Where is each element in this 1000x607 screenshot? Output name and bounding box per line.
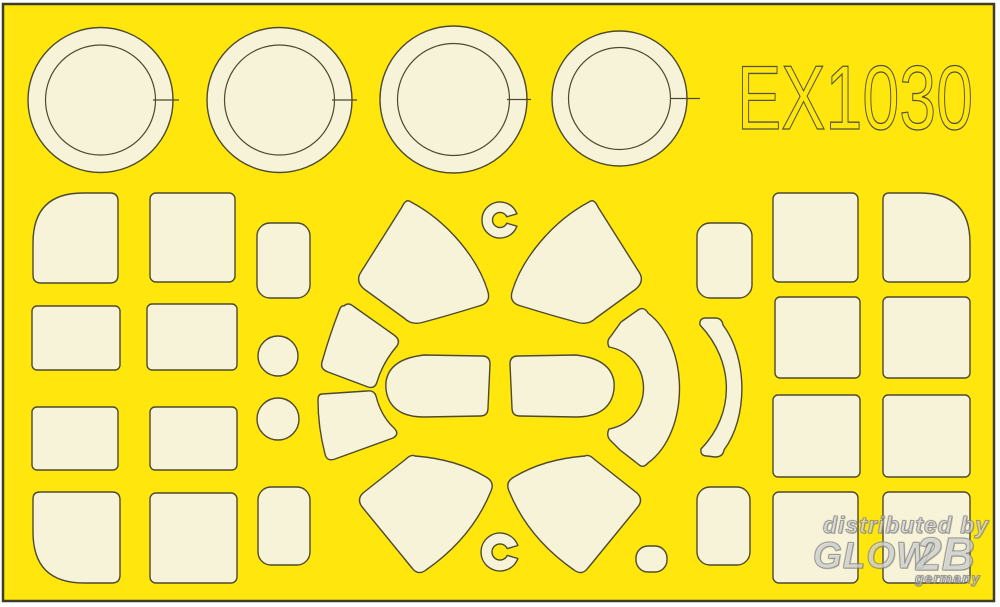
panel-mask-right-r3c1: [773, 395, 860, 477]
windscreen-lens-right-half: [510, 355, 614, 417]
panel-mask-left-r1c1-round-tl: [33, 193, 118, 283]
panel-mask-right-r1c1: [773, 193, 858, 282]
watermark-brand-glow: GLOW: [813, 537, 932, 574]
wheel-mask-4-disc: [552, 31, 687, 166]
panel-mask-right-r2c1: [775, 297, 860, 378]
panel-mask-left-r2c2: [147, 304, 237, 370]
panel-mask-left-r2c1: [32, 306, 120, 370]
small-disc-mask-lower: [257, 398, 299, 440]
watermark-country: germany: [915, 571, 980, 585]
panel-mask-left-r3c1: [32, 407, 118, 470]
panel-mask-left-r4c1-round-bl: [33, 492, 120, 583]
small-oval-mask: [636, 546, 667, 572]
small-tab-mask-right-top: [697, 223, 752, 298]
windscreen-lens-left-half: [386, 355, 490, 417]
panel-mask-right-r1c2-round-tr: [883, 193, 970, 282]
small-disc-mask-upper: [258, 336, 298, 376]
small-tab-mask-right-bottom: [697, 487, 750, 565]
product-code-text: EX1030: [737, 48, 973, 149]
panel-mask-left-r3c2: [150, 407, 237, 470]
panel-mask-right-r3c2: [883, 395, 970, 477]
small-tab-mask-left-bottom: [258, 487, 310, 565]
small-tab-mask-left-top: [257, 223, 310, 298]
panel-mask-left-r4c2: [150, 493, 237, 583]
wheel-mask-1-disc: [28, 28, 173, 173]
panel-mask-left-r1c2: [150, 193, 235, 282]
wheel-mask-2-disc: [207, 28, 352, 173]
mask-sheet-photo: EX1030: [0, 0, 1000, 607]
panel-mask-right-r2c2: [883, 297, 970, 378]
wheel-mask-3-disc: [380, 26, 527, 173]
